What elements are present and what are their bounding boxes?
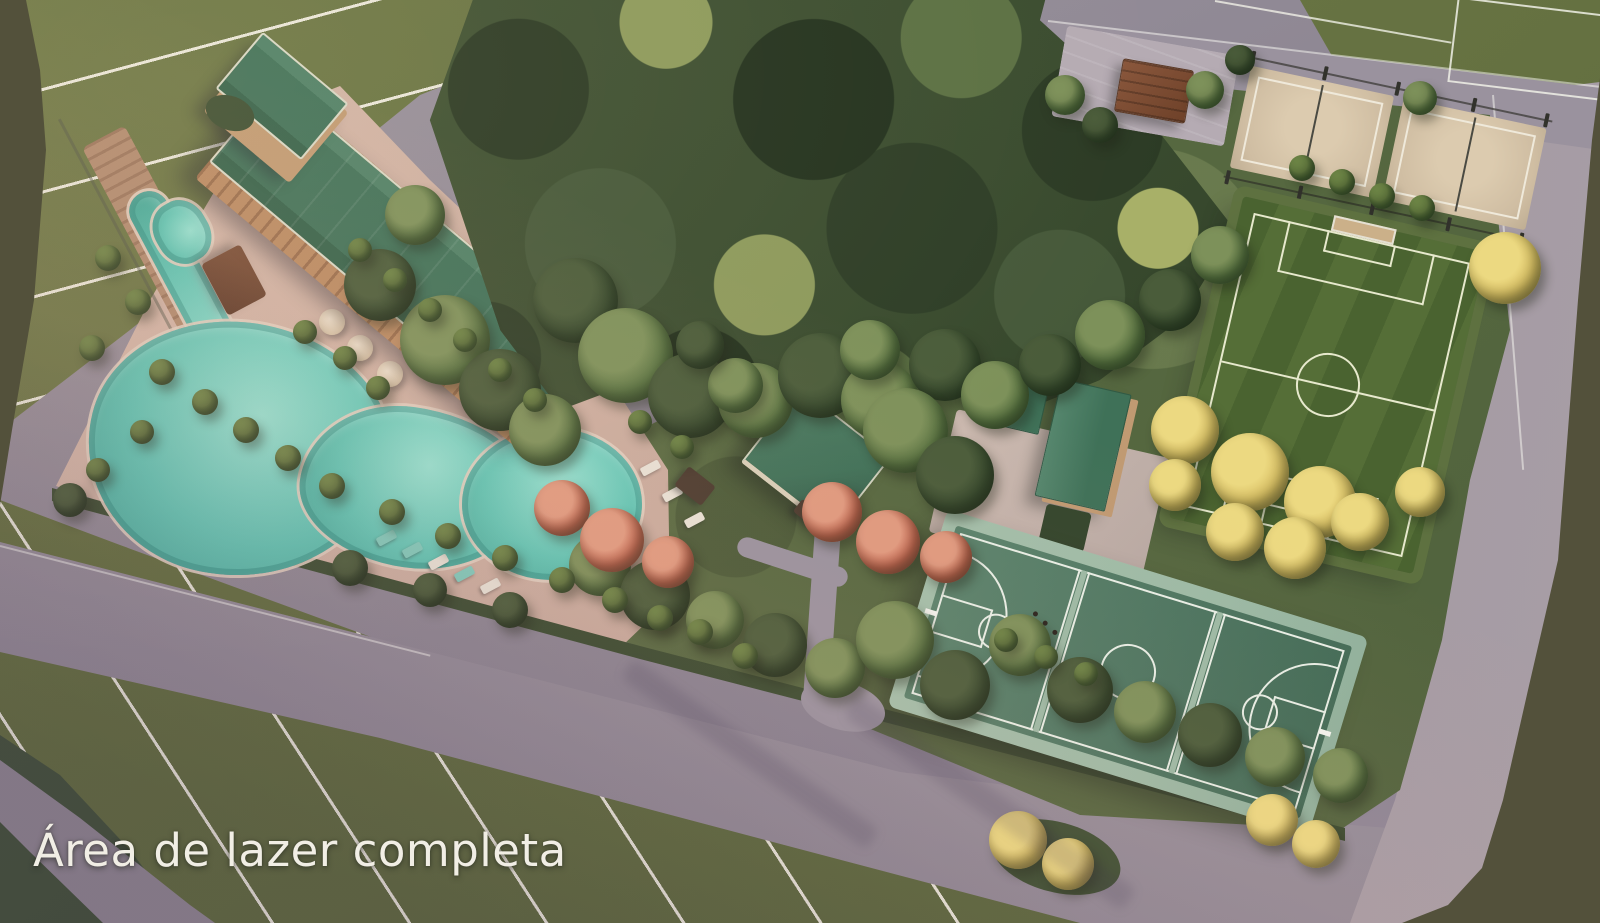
tree — [385, 185, 445, 245]
tree — [1245, 727, 1305, 787]
flowering-tree — [580, 508, 644, 572]
tree — [1075, 300, 1145, 370]
flowering-tree — [856, 510, 920, 574]
palm-tree — [125, 289, 151, 315]
shrub-tree — [492, 592, 528, 628]
palm-tree — [86, 458, 110, 482]
ipe-tree — [1292, 820, 1340, 868]
ipe-tree — [1469, 232, 1541, 304]
sand-court — [1230, 66, 1394, 198]
palm-tree — [687, 619, 713, 645]
shrub-tree — [1225, 45, 1255, 75]
palm-tree — [1074, 662, 1098, 686]
ipe-tree — [1151, 396, 1219, 464]
tree — [1114, 681, 1176, 743]
palm-tree — [1409, 195, 1435, 221]
parasol — [319, 309, 345, 335]
shrub-tree — [676, 321, 724, 369]
palm-tree — [523, 388, 547, 412]
palm-tree — [1289, 155, 1315, 181]
palm-tree — [333, 346, 357, 370]
palm-tree — [275, 445, 301, 471]
tree — [1045, 75, 1085, 115]
aerial-photo — [0, 0, 1600, 923]
palm-tree — [383, 268, 407, 292]
palm-tree — [130, 420, 154, 444]
palm-tree — [319, 473, 345, 499]
tree — [840, 320, 900, 380]
shrub-tree — [1082, 107, 1118, 143]
tree — [856, 601, 934, 679]
palm-tree — [79, 335, 105, 361]
tree — [1191, 226, 1249, 284]
palm-tree — [453, 328, 477, 352]
shrub-tree — [332, 550, 368, 586]
palm-tree — [1329, 169, 1355, 195]
tree — [708, 358, 763, 413]
palm-tree — [602, 587, 628, 613]
ipe-tree — [1149, 459, 1201, 511]
palm-tree — [492, 545, 518, 571]
palm-tree — [233, 417, 259, 443]
sand-court — [1382, 98, 1546, 230]
palm-tree — [628, 410, 652, 434]
shrub-tree — [1019, 334, 1081, 396]
palm-tree — [1034, 645, 1058, 669]
palm-tree — [488, 358, 512, 382]
palm-tree — [1369, 183, 1395, 209]
shrub-tree — [916, 436, 994, 514]
palm-tree — [549, 567, 575, 593]
ipe-tree — [1395, 467, 1445, 517]
flowering-tree — [802, 482, 862, 542]
tree — [1403, 81, 1437, 115]
shrub-tree — [53, 483, 87, 517]
palm-tree — [670, 435, 694, 459]
palm-tree — [293, 320, 317, 344]
ipe-tree — [1206, 503, 1264, 561]
palm-tree — [348, 238, 372, 262]
shrub-tree — [1139, 269, 1201, 331]
palm-tree — [379, 499, 405, 525]
palm-tree — [418, 298, 442, 322]
aerial-render-card: Área de lazer completa — [0, 0, 1600, 923]
palm-tree — [732, 643, 758, 669]
palm-tree — [647, 605, 673, 631]
tree — [1186, 71, 1224, 109]
ipe-tree — [1264, 517, 1326, 579]
support-building-roof — [1035, 379, 1132, 512]
flowering-tree — [642, 536, 694, 588]
caption-text: Área de lazer completa — [33, 824, 567, 877]
ipe-tree — [1246, 794, 1298, 846]
palm-tree — [994, 628, 1018, 652]
palm-tree — [95, 245, 121, 271]
ipe-tree — [1211, 433, 1289, 511]
palm-tree — [435, 523, 461, 549]
palm-tree — [192, 389, 218, 415]
palm-tree — [366, 376, 390, 400]
shrub-tree — [920, 650, 990, 720]
palm-tree — [149, 359, 175, 385]
tree — [1313, 748, 1368, 803]
shrub-tree — [1178, 703, 1242, 767]
shrub-tree — [413, 573, 447, 607]
ipe-tree — [1331, 493, 1389, 551]
flowering-tree — [920, 531, 972, 583]
